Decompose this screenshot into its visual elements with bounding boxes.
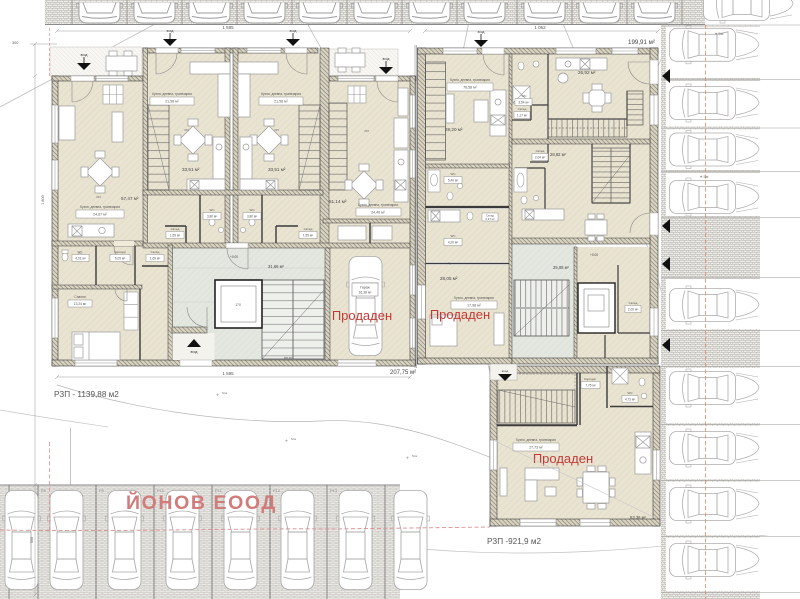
svg-text:207,75 м²: 207,75 м² [390,370,416,376]
svg-text:Кухня, дневна, трапезария: Кухня, дневна, трапезария [516,438,556,442]
svg-text:170: 170 [235,303,241,307]
svg-text:28,82 м²: 28,82 м² [550,152,567,157]
svg-text:4,20 м²: 4,20 м² [448,241,458,245]
svg-text:Склад: Склад [536,149,545,153]
svg-text:6,05 м²: 6,05 м² [115,257,125,261]
svg-text:РЗП - 1139,88 м2: РЗП - 1139,88 м2 [54,390,119,399]
svg-text:5см: 5см [291,437,296,441]
svg-text:16,38 м²: 16,38 м² [359,291,373,295]
svg-text:⌖ 5м: ⌖ 5м [700,174,709,179]
svg-text:Продаден: Продаден [332,308,392,323]
svg-text:25,08 м²: 25,08 м² [553,265,570,270]
svg-text:2,04 м²: 2,04 м² [535,156,545,160]
svg-text:2,00 м²: 2,00 м² [628,308,638,312]
svg-text:199,91 м²: 199,91 м² [628,39,655,46]
svg-text:26,92 м²: 26,92 м² [578,70,596,75]
svg-text:Кухня, дневна, трапезария: Кухня, дневна, трапезария [358,203,398,207]
svg-text:0,97 м²: 0,97 м² [485,217,494,221]
svg-text:33,51 м²: 33,51 м² [182,167,200,172]
svg-text:7,75 м²: 7,75 м² [585,384,595,388]
svg-text:Склад: Склад [171,227,180,231]
svg-text:63,36 м²: 63,36 м² [630,515,647,520]
svg-text:Кухня, дневна, трапезария: Кухня, дневна, трапезария [80,205,120,209]
svg-text:1 595: 1 595 [222,25,234,30]
svg-text:Кухня, дневна, трапезария: Кухня, дневна, трапезария [152,92,192,96]
svg-text:вход: вход [478,30,485,34]
svg-text:Кухня, дневна, трапезария: Кухня, дневна, трапезария [450,78,490,82]
svg-text:1,17 м²: 1,17 м² [517,114,527,118]
svg-text:Склад: Склад [151,250,160,254]
svg-text:WC: WC [210,208,216,212]
svg-text:24,67 м²: 24,67 м² [93,213,107,217]
svg-text:вход: вход [383,57,390,61]
svg-text:⌖ 5м: ⌖ 5м [715,31,724,36]
svg-text:4,73 м²: 4,73 м² [625,398,635,402]
svg-text:ПП.БЛ: ПП.БЛ [284,356,293,360]
svg-text:P8: P8 [41,488,47,493]
svg-text:1,55 м²: 1,55 м² [170,234,180,238]
svg-text:28,20 м²: 28,20 м² [445,127,463,132]
svg-text:ЙОНОВ ЕООД: ЙОНОВ ЕООД [126,490,277,514]
svg-text:Коридор: Коридор [114,250,126,254]
svg-text:76,58 м²: 76,58 м² [463,86,477,90]
svg-text:33,51 м²: 33,51 м² [268,167,286,172]
svg-text:28,05 м²: 28,05 м² [440,276,458,281]
svg-text:21,58 м²: 21,58 м² [165,100,179,104]
svg-text:1,55 м²: 1,55 м² [303,234,313,238]
svg-text:Склад: Склад [304,227,313,231]
svg-text:+0.00: +0.00 [590,253,598,257]
svg-text:1 595: 1 595 [222,371,234,376]
svg-text:вход: вход [81,53,88,57]
svg-text:27,73 м²: 27,73 м² [529,446,543,450]
svg-text:Склад: Склад [518,107,527,111]
svg-text:24,40 м²: 24,40 м² [371,211,385,215]
svg-text:Спалня: Спалня [74,295,85,299]
svg-text:Продаден: Продаден [430,307,490,322]
svg-text:3,54 м²: 3,54 м² [518,101,528,105]
svg-text:WC: WC [522,94,528,98]
svg-text:1 800: 1 800 [41,195,45,205]
svg-text:+0.00: +0.00 [230,255,238,259]
svg-text:P13: P13 [330,488,338,493]
svg-text:1 052: 1 052 [534,25,546,30]
svg-text:31,66 м²: 31,66 м² [268,264,285,269]
svg-text:Кухня, дневна, трапезария: Кухня, дневна, трапезария [454,296,494,300]
svg-text:вход: вход [502,369,509,373]
svg-text:358: 358 [364,129,369,133]
svg-text:РЗП -921,9 м2: РЗП -921,9 м2 [487,537,542,546]
svg-text:5см: 5см [222,391,227,395]
svg-text:3,80 м²: 3,80 м² [207,215,217,219]
svg-text:WC: WC [451,172,457,176]
svg-text:WC: WC [451,234,457,238]
svg-text:WC: WC [628,391,634,395]
svg-text:3,80 м²: 3,80 м² [247,215,257,219]
svg-text:365: 365 [184,128,189,132]
svg-text:500: 500 [30,537,34,543]
svg-text:Гараж: Гараж [360,286,370,290]
svg-text:P9: P9 [99,488,105,493]
svg-text:Коридор: Коридор [584,377,596,381]
svg-text:4,01 м²: 4,01 м² [75,257,85,261]
svg-text:365: 365 [96,195,101,199]
svg-text:WC: WC [250,208,256,212]
svg-text:57,47 м²: 57,47 м² [121,196,139,201]
svg-text:1,69 м²: 1,69 м² [150,257,160,261]
svg-text:вход: вход [191,350,198,354]
svg-text:WC: WC [78,250,84,254]
svg-text:Склад: Склад [629,301,638,305]
svg-text:Кухня, дневна, трапезария: Кухня, дневна, трапезария [261,92,301,96]
svg-text:51,14 м²: 51,14 м² [329,199,347,204]
svg-text:5,40 м²: 5,40 м² [448,179,458,183]
svg-text:300: 300 [12,41,18,45]
svg-text:5см: 5см [412,454,417,458]
svg-text:365: 365 [274,128,279,132]
svg-text:13,24 м²: 13,24 м² [74,302,87,306]
svg-text:21,58 м²: 21,58 м² [274,100,288,104]
